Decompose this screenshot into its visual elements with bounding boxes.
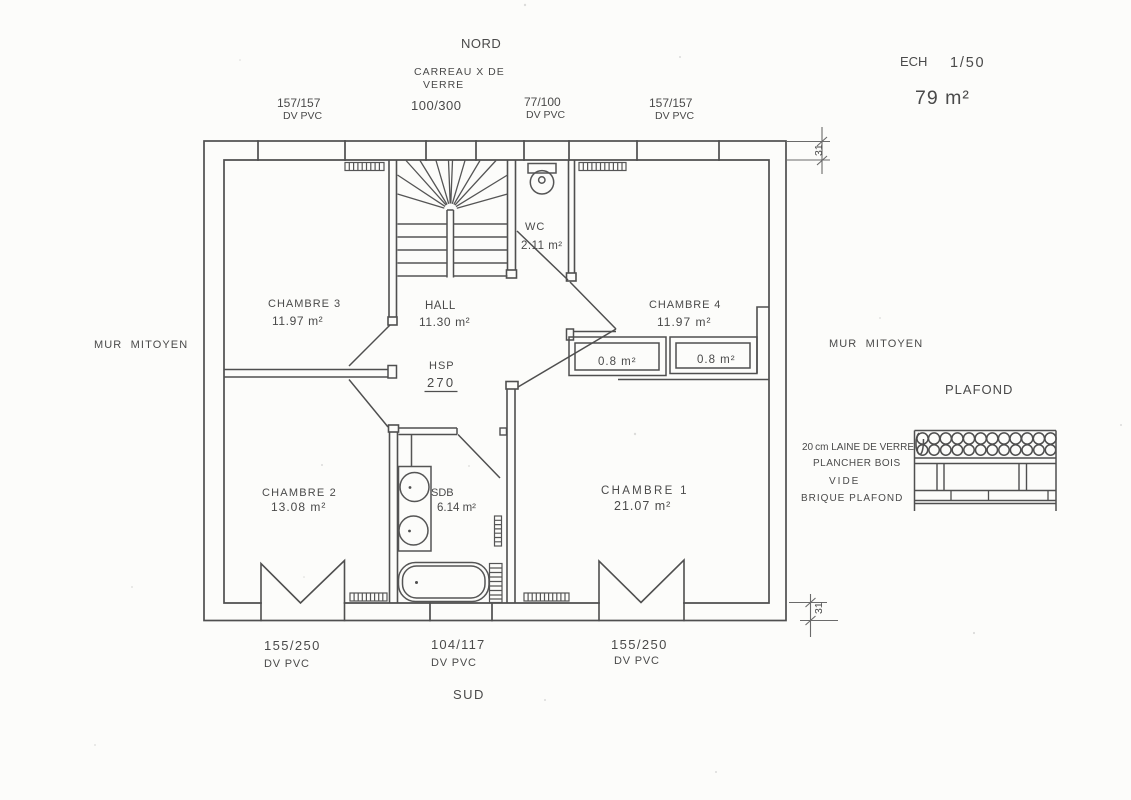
svg-text:6.14 m²: 6.14 m² [437, 502, 476, 514]
svg-text:VIDE: VIDE [829, 476, 860, 487]
svg-text:11.30 m²: 11.30 m² [419, 315, 470, 329]
svg-text:CHAMBRE 1: CHAMBRE 1 [601, 485, 689, 497]
svg-text:11.97 m²: 11.97 m² [657, 315, 711, 329]
svg-text:77/100: 77/100 [524, 95, 561, 109]
svg-text:157/157: 157/157 [649, 96, 693, 110]
svg-text:DV PVC: DV PVC [431, 657, 477, 669]
svg-text:DV PVC: DV PVC [264, 658, 310, 670]
svg-text:MUR MITOYEN: MUR MITOYEN [829, 338, 923, 350]
svg-text:HSP: HSP [429, 360, 455, 372]
svg-text:VERRE: VERRE [423, 79, 464, 91]
svg-text:0.8 m²: 0.8 m² [598, 356, 637, 368]
svg-text:SDB: SDB [431, 487, 454, 499]
svg-text:DV PVC: DV PVC [283, 110, 323, 122]
svg-text:31: 31 [813, 144, 825, 156]
svg-text:104/117: 104/117 [431, 637, 485, 652]
svg-text:20 cm LAINE DE VERRE: 20 cm LAINE DE VERRE [802, 442, 914, 453]
svg-text:PLAFOND: PLAFOND [945, 382, 1013, 397]
svg-text:SUD: SUD [453, 687, 485, 702]
svg-text:WC: WC [525, 221, 545, 233]
svg-text:NORD: NORD [461, 36, 501, 51]
svg-text:CARREAU X DE: CARREAU X DE [414, 66, 505, 78]
svg-text:31: 31 [813, 602, 825, 614]
svg-text:2.11 m²: 2.11 m² [521, 240, 563, 252]
svg-text:155/250: 155/250 [264, 638, 321, 653]
svg-text:MUR MITOYEN: MUR MITOYEN [94, 339, 188, 351]
svg-text:CHAMBRE 3: CHAMBRE 3 [268, 298, 341, 310]
svg-text:13.08 m²: 13.08 m² [271, 500, 326, 514]
svg-text:HALL: HALL [425, 300, 456, 312]
svg-text:DV PVC: DV PVC [655, 110, 695, 122]
svg-text:CHAMBRE 2: CHAMBRE 2 [262, 487, 337, 499]
svg-text:1/50: 1/50 [950, 55, 985, 71]
svg-text:DV PVC: DV PVC [526, 109, 566, 121]
svg-text:100/300: 100/300 [411, 98, 462, 113]
svg-text:21.07 m²: 21.07 m² [614, 499, 671, 513]
svg-text:0.8 m²: 0.8 m² [697, 354, 736, 366]
svg-text:157/157: 157/157 [277, 96, 321, 110]
svg-text:ECH: ECH [900, 54, 927, 69]
svg-text:11.97 m²: 11.97 m² [272, 314, 323, 328]
svg-text:155/250: 155/250 [611, 637, 668, 652]
svg-text:270: 270 [427, 375, 455, 390]
svg-text:BRIQUE PLAFOND: BRIQUE PLAFOND [801, 493, 903, 504]
svg-text:PLANCHER BOIS: PLANCHER BOIS [813, 458, 901, 469]
svg-text:DV PVC: DV PVC [614, 655, 660, 667]
svg-text:79 m²: 79 m² [915, 87, 970, 109]
svg-text:CHAMBRE 4: CHAMBRE 4 [649, 299, 721, 311]
